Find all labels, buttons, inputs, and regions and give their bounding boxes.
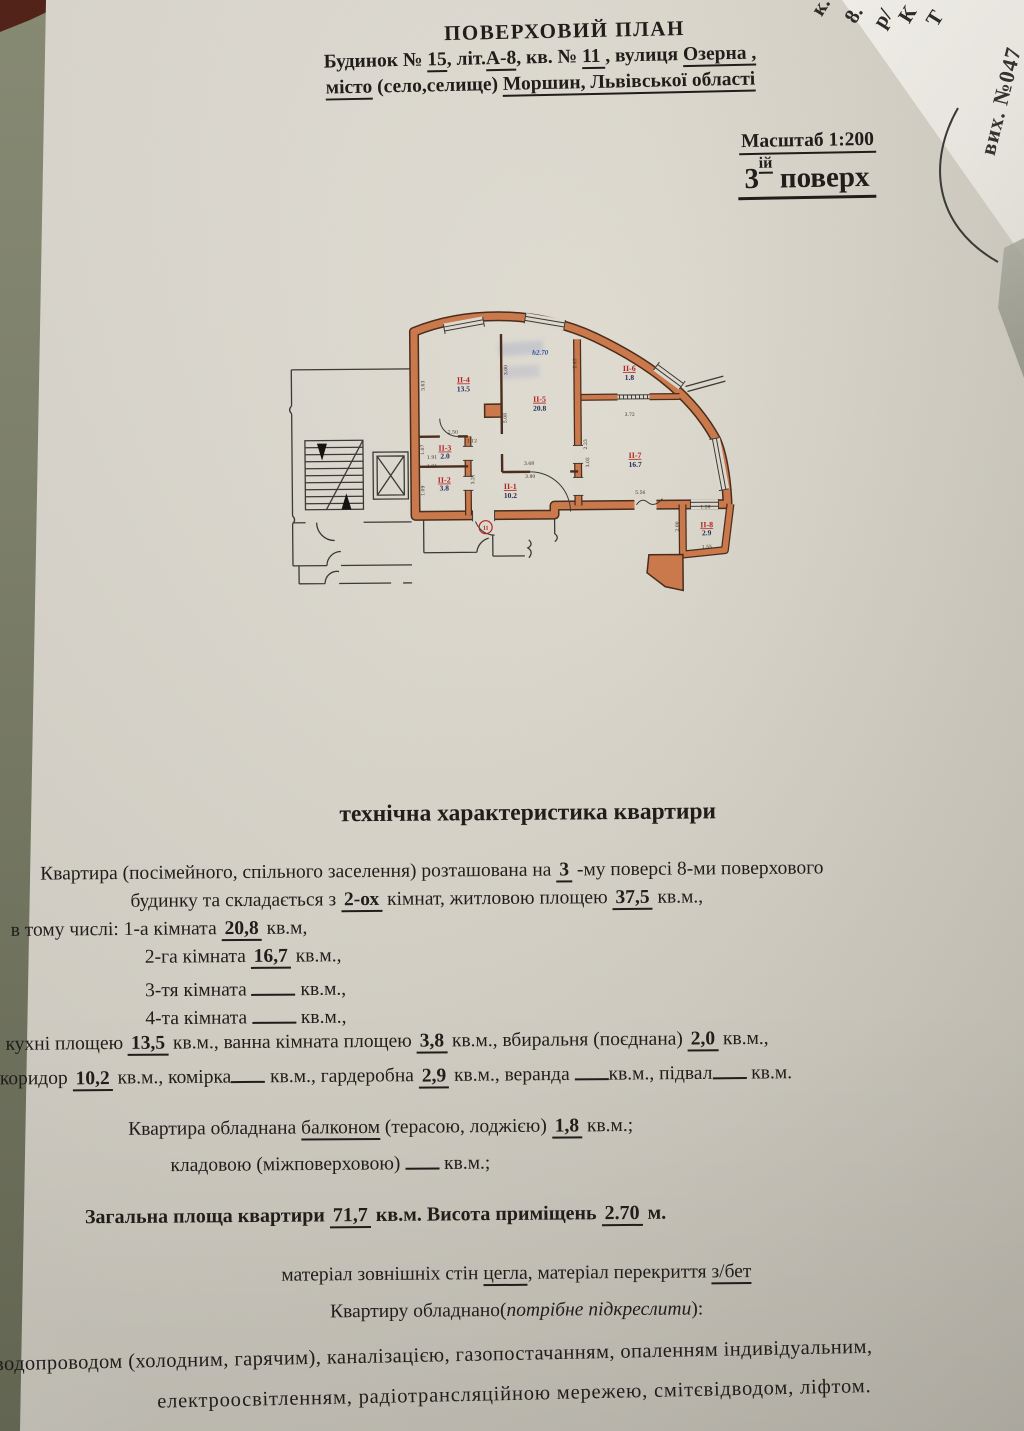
floor-plan-drawing: II-4 13.5 II-5 20.8 II-6 1.8 II-7 16.7 I… [277, 304, 742, 600]
tech-line: кухні площею 13,5 кв.м., ванна кімната п… [5, 1028, 768, 1056]
room-id: II-1 [504, 482, 517, 491]
photo-of-floor-plan-document: { "header": { "title": "ПОВЕРХОВИЙ ПЛАН"… [0, 0, 1024, 1431]
floor-word: поверх [772, 161, 869, 195]
apartment-number-badge: 11 [479, 521, 492, 534]
svg-text:1.09: 1.09 [420, 486, 426, 496]
room-area: 1.8 [625, 373, 635, 382]
svg-text:5.56: 5.56 [635, 490, 645, 496]
tech-line: кладовою (міжповерховою) кв.м.; [170, 1147, 490, 1177]
room-area: 2.9 [702, 528, 712, 537]
room-area: 2.0 [440, 452, 450, 461]
svg-text:2.50: 2.50 [448, 429, 458, 435]
svg-text:2.45: 2.45 [572, 358, 578, 368]
svg-text:1.07: 1.07 [420, 445, 426, 455]
svg-text:1.91: 1.91 [427, 464, 437, 470]
svg-text:2.00: 2.00 [675, 521, 681, 531]
room-area: 20.8 [533, 404, 546, 413]
svg-text:11: 11 [483, 526, 489, 532]
svg-text:3.68: 3.68 [524, 461, 534, 467]
tech-line: Квартира (посімейного, спільного заселен… [40, 857, 823, 885]
room-id: II-6 [623, 364, 636, 373]
room-area: 13.5 [457, 384, 470, 393]
tech-line: матеріал зовнішніх стін цегла, матеріал … [151, 1260, 881, 1288]
room-id: II-5 [533, 395, 546, 404]
svg-text:1.91: 1.91 [427, 455, 437, 461]
floor-ordinal: ій [759, 155, 773, 174]
tech-line-total-area: Загальна площа квартири 71,7 кв.м. Висот… [85, 1202, 666, 1230]
room-id: II-4 [457, 375, 470, 384]
ceiling-height-label: h2.70 [532, 349, 549, 357]
svg-text:3.21: 3.21 [470, 474, 476, 484]
svg-text:3.00: 3.00 [503, 365, 509, 375]
tech-line: 3-тя кімната кв.м., [145, 973, 346, 1002]
svg-text:3.72: 3.72 [625, 412, 635, 418]
svg-text:3.02: 3.02 [585, 457, 591, 467]
svg-text:5.08: 5.08 [503, 413, 509, 423]
svg-text:2.23: 2.23 [583, 439, 589, 449]
svg-text:1.55: 1.55 [702, 544, 712, 550]
tech-line: коридор 10,2 кв.м., комірка кв.м., гарде… [0, 1057, 792, 1091]
room-area: 10.2 [504, 491, 517, 500]
tech-line: Квартира обладнана балконом (терасою, ло… [128, 1115, 633, 1141]
svg-text:1.28: 1.28 [700, 504, 710, 510]
svg-text:1.12: 1.12 [467, 438, 477, 444]
svg-text:3.80: 3.80 [525, 474, 535, 480]
tech-line: 2-га кімната 16,7 кв.м., [145, 945, 342, 969]
stairs-down-arrow [317, 444, 327, 461]
floor-number: 3 [744, 163, 759, 195]
svg-text:3.63: 3.63 [420, 381, 426, 391]
room-area: 16.7 [629, 460, 642, 469]
room-id: II-7 [629, 451, 642, 460]
room-area: 3.8 [440, 484, 450, 493]
tech-line: електроосвітленням, радіотрансляційною м… [54, 1373, 974, 1416]
tech-line: Квартиру обладнано(потрібне підкреслити)… [152, 1297, 882, 1325]
tech-heading: технічна характеристика квартири [238, 797, 818, 829]
tech-line: в тому числі: 1-а кімната 20,8 кв.м, [11, 918, 308, 942]
document-content: ПОВЕРХОВИЙ ПЛАН Будинок № 15, літ.А-8, к… [0, 0, 1024, 1431]
tech-line: водопроводом (холодним, гарячим), каналі… [0, 1336, 873, 1377]
tech-line: будинку та складається з 2-ох кімнат, жи… [130, 886, 703, 912]
tech-line: 4-та кімната кв.м., [145, 1001, 346, 1030]
